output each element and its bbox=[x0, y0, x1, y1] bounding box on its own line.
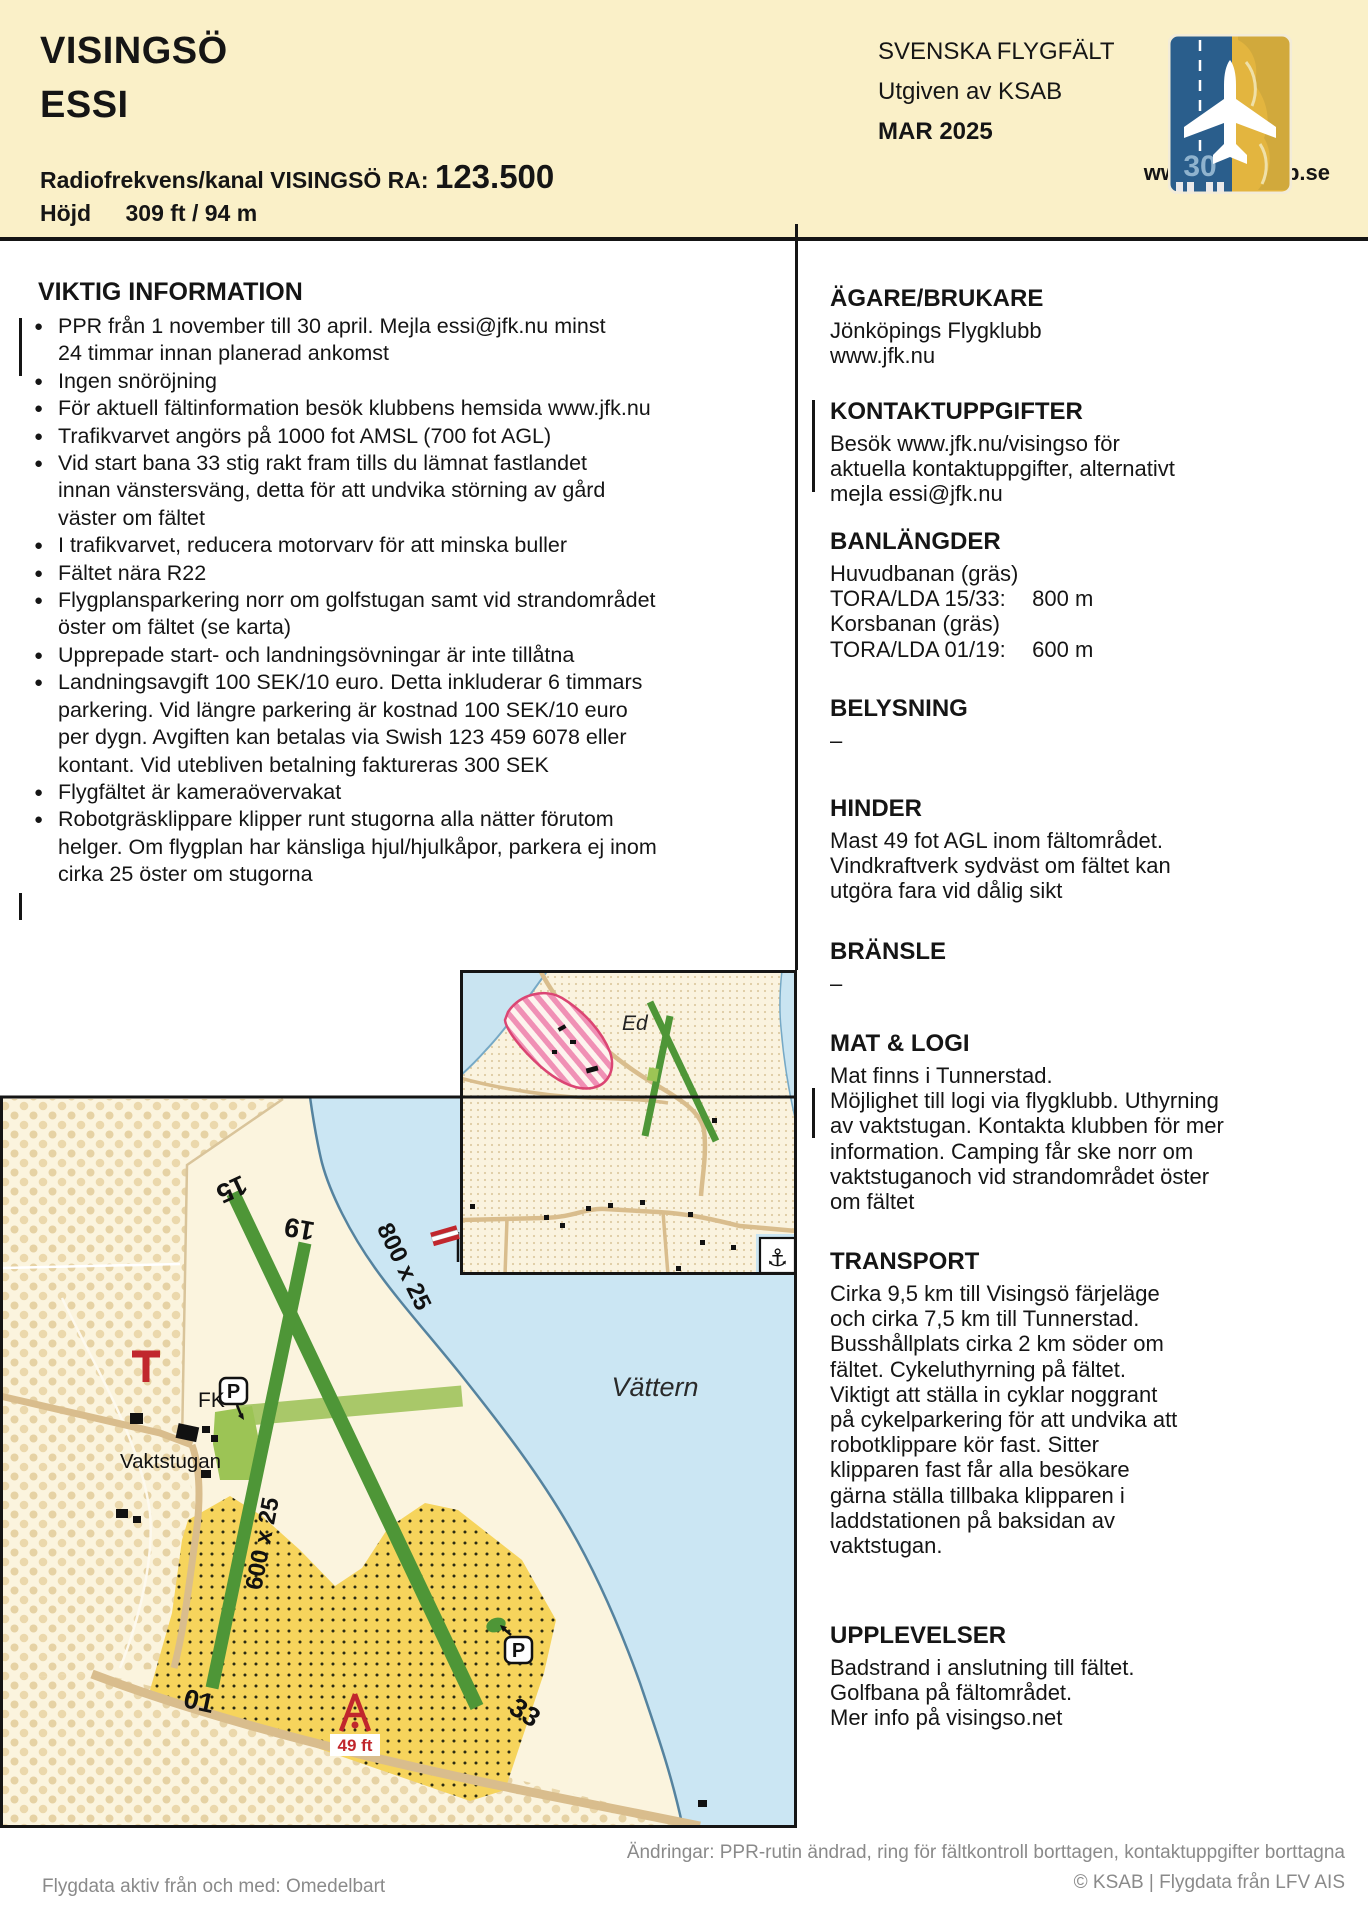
bullet-icon: ● bbox=[34, 395, 58, 422]
list-item: ●Trafikvarvet angörs på 1000 fot AMSL (7… bbox=[34, 423, 766, 450]
section-heading: ÄGARE/BRUKARE bbox=[830, 285, 1345, 313]
bullet-icon: ● bbox=[34, 806, 58, 888]
list-item: ●Upprepade start- och landningsövningar … bbox=[34, 642, 766, 669]
list-item: ●Flygfältet är kameraövervakat bbox=[34, 779, 766, 806]
flygklubb-label: FK bbox=[198, 1389, 225, 1412]
section-transport: TRANSPORT Cirka 9,5 km till Visingsö fär… bbox=[830, 1248, 1345, 1558]
important-info-heading: VIKTIG INFORMATION bbox=[38, 278, 303, 307]
tora-lda-label: TORA/LDA 01/19: bbox=[830, 637, 1026, 662]
elevation-line: Höjd 309 ft / 94 m bbox=[40, 200, 257, 227]
section-heading: HINDER bbox=[830, 795, 1345, 823]
list-item: ●För aktuell fältinformation besök klubb… bbox=[34, 395, 766, 422]
change-bar bbox=[812, 400, 815, 492]
section-belysning: BELYSNING – bbox=[830, 695, 1345, 753]
bullet-icon: ● bbox=[34, 642, 58, 669]
section-heading: MAT & LOGI bbox=[830, 1030, 1345, 1058]
tora-lda-value: 600 m bbox=[1032, 637, 1093, 662]
ksab-logo-icon: 30 bbox=[1168, 34, 1292, 194]
section-heading: BELYSNING bbox=[830, 695, 1345, 723]
runway-surface-row: Huvudbanan (gräs) bbox=[830, 561, 1345, 586]
section-text: Cirka 9,5 km till Visingsö färjeläge och… bbox=[830, 1281, 1345, 1558]
change-bar bbox=[19, 893, 22, 920]
anchor-icon: ⚓ bbox=[767, 1245, 789, 1272]
threshold-label-01: 01 bbox=[181, 1683, 217, 1719]
radio-frequency-label: Radiofrekvens/kanal VISINGSÖ RA: bbox=[40, 167, 429, 193]
header-divider-rule bbox=[0, 237, 1368, 241]
ksab-logo: 30 bbox=[1168, 34, 1292, 199]
section-text: – bbox=[830, 971, 1345, 996]
bullet-icon: ● bbox=[34, 423, 58, 450]
section-agare-brukare: ÄGARE/BRUKARE Jönköpings Flygklubb www.j… bbox=[830, 285, 1345, 368]
bullet-icon: ● bbox=[34, 532, 58, 559]
list-item: ●Landningsavgift 100 SEK/10 euro. Detta … bbox=[34, 669, 766, 779]
bullet-icon: ● bbox=[34, 450, 58, 532]
series-title: SVENSKA FLYGFÄLT bbox=[878, 38, 1115, 66]
effective-date-note: Flygdata aktiv från och med: Omedelbart bbox=[42, 1876, 385, 1898]
list-item: ●Flygplansparkering norr om golfstugan s… bbox=[34, 587, 766, 642]
logo-runway-number: 30 bbox=[1183, 150, 1216, 183]
airfield-code: ESSI bbox=[40, 84, 129, 127]
changes-note: Ändringar: PPR-rutin ändrad, ring för fä… bbox=[600, 1842, 1345, 1864]
list-item: ●I trafikvarvet, reducera motorvarv för … bbox=[34, 532, 766, 559]
bullet-icon: ● bbox=[34, 368, 58, 395]
radio-frequency-value: 123.500 bbox=[435, 158, 554, 195]
svg-text:P: P bbox=[227, 1381, 240, 1403]
list-item: ●PPR från 1 november till 30 april. Mejl… bbox=[34, 313, 766, 368]
section-text: Mat finns i Tunnerstad. Möjlighet till l… bbox=[830, 1063, 1345, 1214]
runway-length-row: TORA/LDA 01/19: 600 m bbox=[830, 637, 1345, 662]
elevation-label: Höjd bbox=[40, 200, 91, 226]
elevation-value: 309 ft / 94 m bbox=[126, 200, 258, 226]
mast-height-label: 49 ft bbox=[338, 1736, 373, 1755]
column-divider bbox=[795, 224, 798, 970]
radio-frequency-line: Radiofrekvens/kanal VISINGSÖ RA: 123.500 bbox=[40, 158, 554, 196]
section-heading: BRÄNSLE bbox=[830, 938, 1345, 966]
airfield-name: VISINGSÖ bbox=[40, 30, 228, 73]
section-mat-logi: MAT & LOGI Mat finns i Tunnerstad. Möjli… bbox=[830, 1030, 1345, 1214]
section-upplevelser: UPPLEVELSER Badstrand i anslutning till … bbox=[830, 1622, 1345, 1731]
section-bransle: BRÄNSLE – bbox=[830, 938, 1345, 996]
section-heading: UPPLEVELSER bbox=[830, 1622, 1345, 1650]
important-info-list: ●PPR från 1 november till 30 april. Mejl… bbox=[34, 313, 766, 889]
list-item: ●Fältet nära R22 bbox=[34, 560, 766, 587]
list-item: ●Ingen snöröjning bbox=[34, 368, 766, 395]
lake-name-label: Vättern bbox=[611, 1372, 698, 1402]
inset-map: Ed ⚓ bbox=[460, 970, 797, 1275]
bullet-icon: ● bbox=[34, 313, 58, 368]
list-item: ●Robotgräsklippare klipper runt stugorna… bbox=[34, 806, 766, 888]
section-heading: BANLÄNGDER bbox=[830, 528, 1345, 556]
section-heading: TRANSPORT bbox=[830, 1248, 1345, 1276]
section-text: Badstrand i anslutning till fältet. Golf… bbox=[830, 1655, 1345, 1731]
svg-text:P: P bbox=[512, 1640, 525, 1662]
vaktstugan-label: Vaktstugan bbox=[120, 1450, 221, 1473]
section-text: Mast 49 fot AGL inom fältområdet. Vindkr… bbox=[830, 828, 1345, 904]
copyright-note: © KSAB | Flygdata från LFV AIS bbox=[600, 1872, 1345, 1894]
threshold-label-19: 19 bbox=[282, 1211, 317, 1246]
section-kontaktuppgifter: KONTAKTUPPGIFTER Besök www.jfk.nu/vising… bbox=[830, 398, 1345, 507]
change-bar bbox=[19, 318, 22, 376]
list-item: ●Vid start bana 33 stig rakt fram tills … bbox=[34, 450, 766, 532]
bullet-icon: ● bbox=[34, 779, 58, 806]
tora-lda-value: 800 m bbox=[1032, 586, 1093, 611]
publisher: Utgiven av KSAB bbox=[878, 78, 1062, 106]
section-banlangder: BANLÄNGDER Huvudbanan (gräs) TORA/LDA 15… bbox=[830, 528, 1345, 662]
runway-surface-row: Korsbanan (gräs) bbox=[830, 611, 1345, 636]
section-hinder: HINDER Mast 49 fot AGL inom fältområdet.… bbox=[830, 795, 1345, 904]
runway-length-row: TORA/LDA 15/33: 800 m bbox=[830, 586, 1345, 611]
section-text: Jönköpings Flygklubb www.jfk.nu bbox=[830, 318, 1345, 368]
section-heading: KONTAKTUPPGIFTER bbox=[830, 398, 1345, 426]
section-text: Besök www.jfk.nu/visingso för aktuella k… bbox=[830, 431, 1345, 507]
bullet-icon: ● bbox=[34, 669, 58, 779]
bullet-icon: ● bbox=[34, 560, 58, 587]
bullet-icon: ● bbox=[34, 587, 58, 642]
harbor-symbol: ⚓ bbox=[760, 1238, 795, 1273]
section-text: – bbox=[830, 728, 1345, 753]
tora-lda-label: TORA/LDA 15/33: bbox=[830, 586, 1026, 611]
airfield-map: P P 49 ft 15 19 01 33 800 x 25 600 x 25 … bbox=[0, 968, 800, 1835]
ed-village-label: Ed bbox=[622, 1012, 649, 1035]
edition-date: MAR 2025 bbox=[878, 118, 993, 146]
change-bar bbox=[812, 1088, 815, 1138]
